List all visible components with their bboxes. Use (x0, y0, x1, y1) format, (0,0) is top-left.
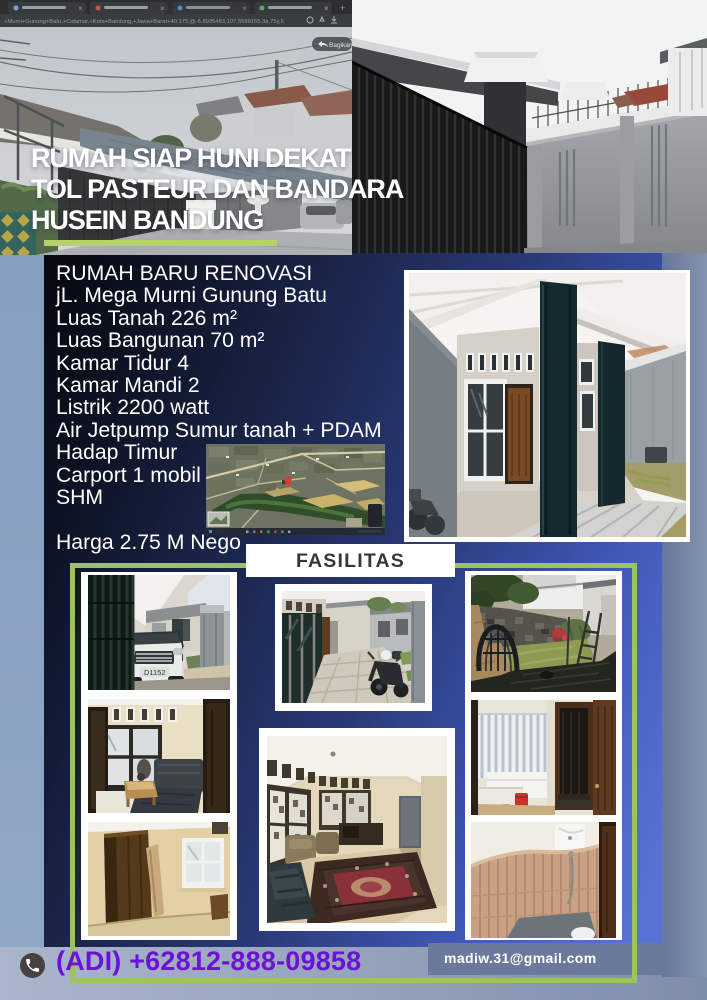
svg-text:×: × (160, 4, 165, 13)
svg-text:+: + (340, 3, 345, 13)
svg-text:Bagikan: Bagikan (329, 42, 352, 49)
svg-text:×: × (78, 4, 83, 13)
svg-text:×: × (242, 4, 247, 13)
svg-text:×: × (324, 4, 329, 13)
svg-text:+Murni+Gunung+Batu,+Cidamar,+K: +Murni+Gunung+Batu,+Cidamar,+Kota+Bandun… (4, 19, 284, 25)
svg-text:D1152: D1152 (144, 668, 166, 677)
